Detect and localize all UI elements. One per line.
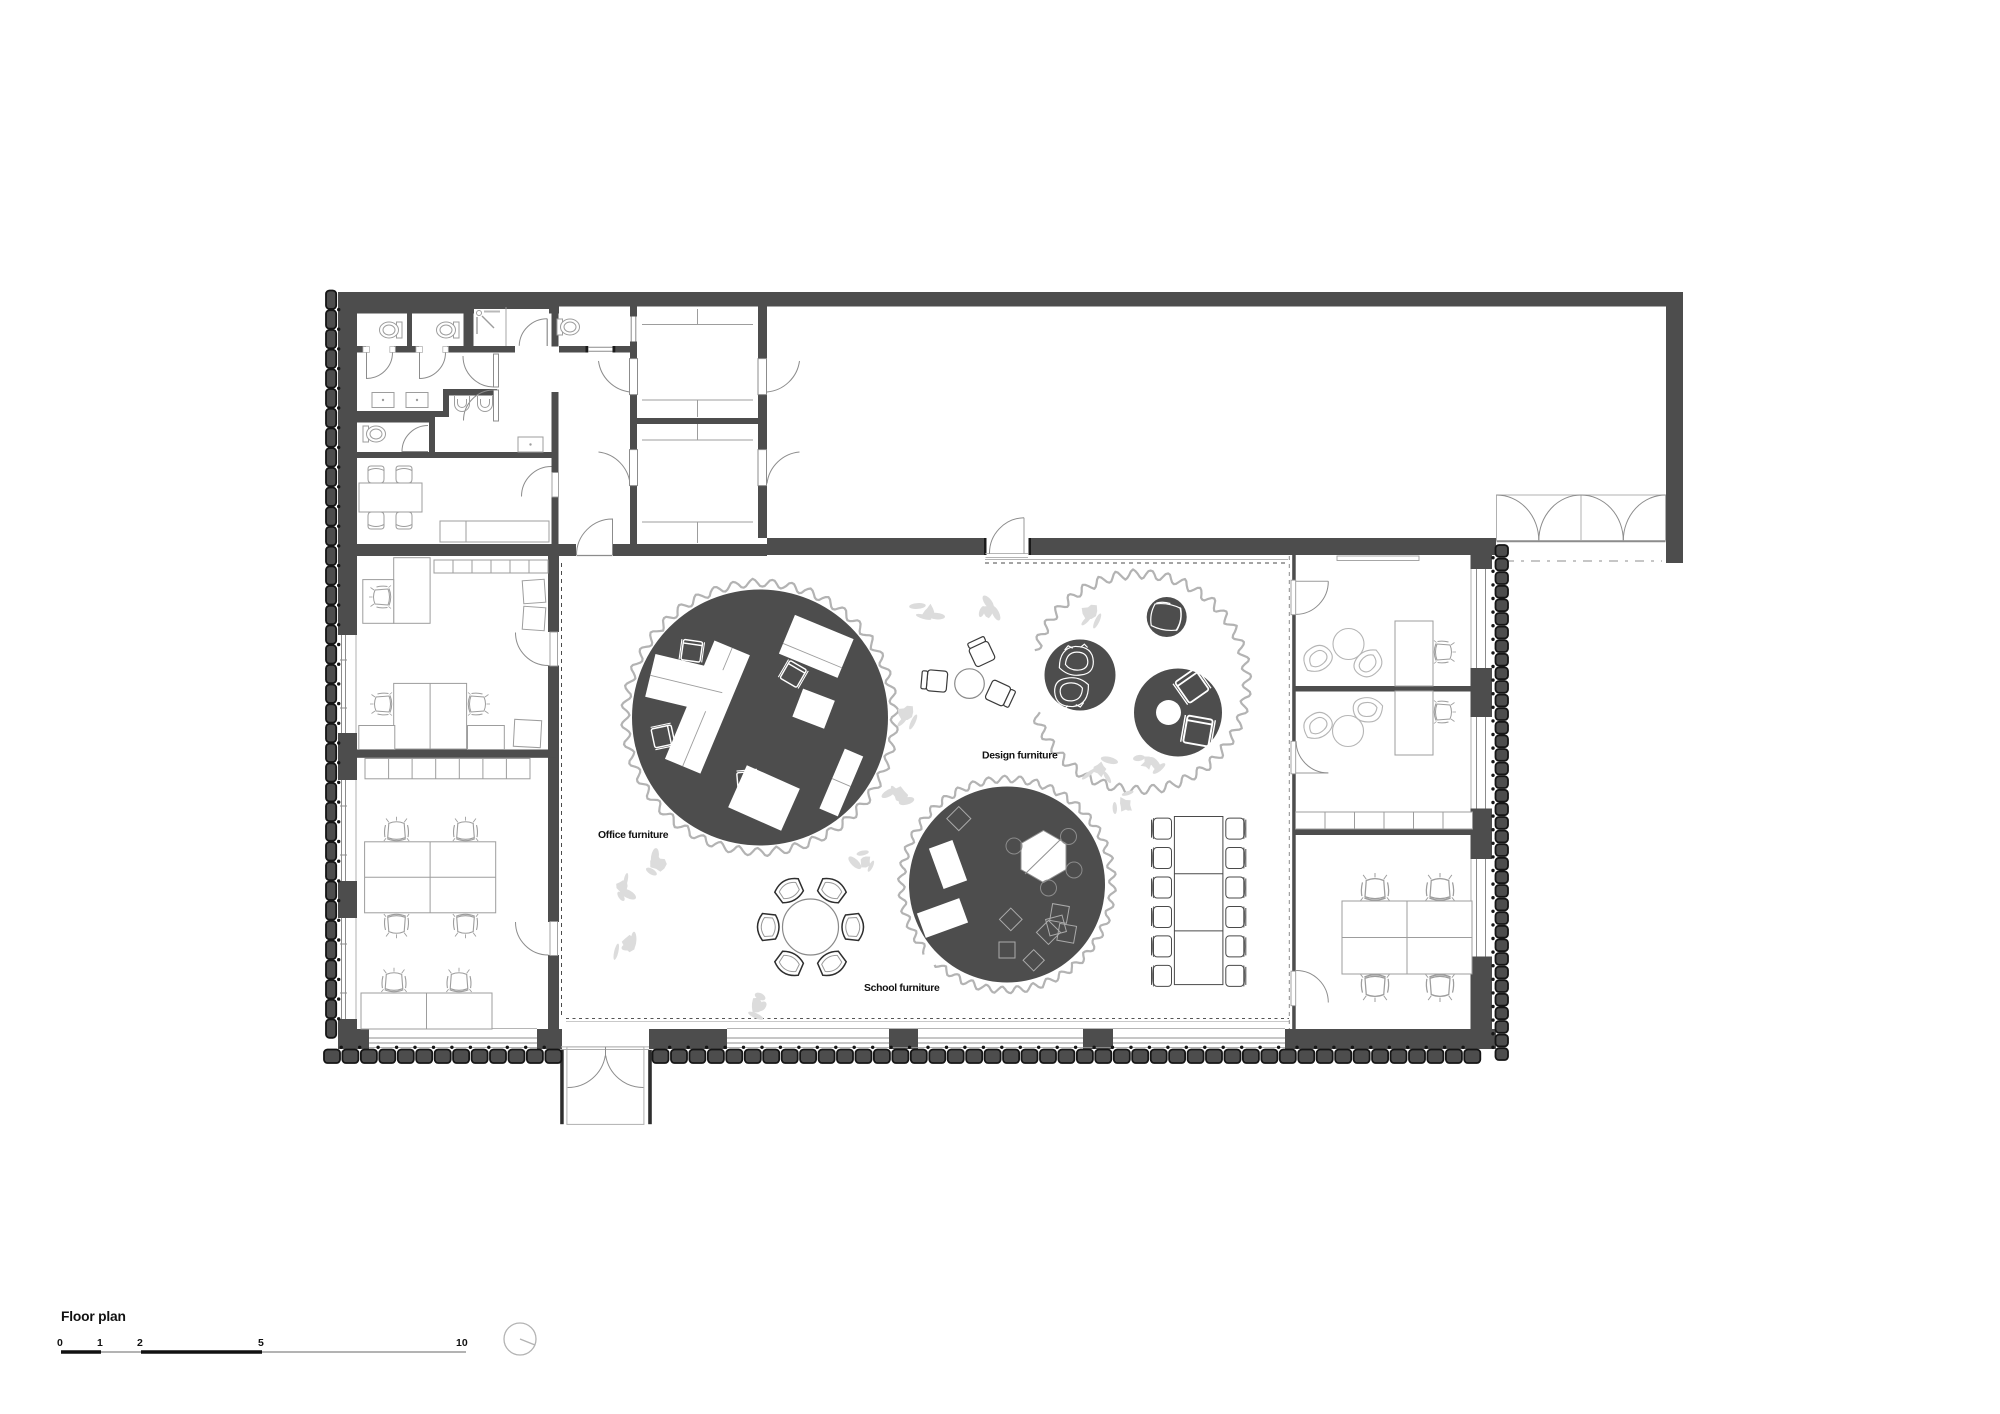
svg-text:10: 10	[456, 1337, 468, 1349]
svg-text:1: 1	[97, 1337, 103, 1349]
svg-text:Design furniture: Design furniture	[982, 751, 1058, 762]
svg-text:School furniture: School furniture	[864, 983, 940, 994]
svg-text:Office furniture: Office furniture	[598, 830, 669, 841]
svg-text:5: 5	[258, 1337, 264, 1349]
svg-text:0: 0	[57, 1337, 63, 1349]
svg-text:Floor plan: Floor plan	[61, 1309, 126, 1324]
svg-text:2: 2	[137, 1337, 143, 1349]
